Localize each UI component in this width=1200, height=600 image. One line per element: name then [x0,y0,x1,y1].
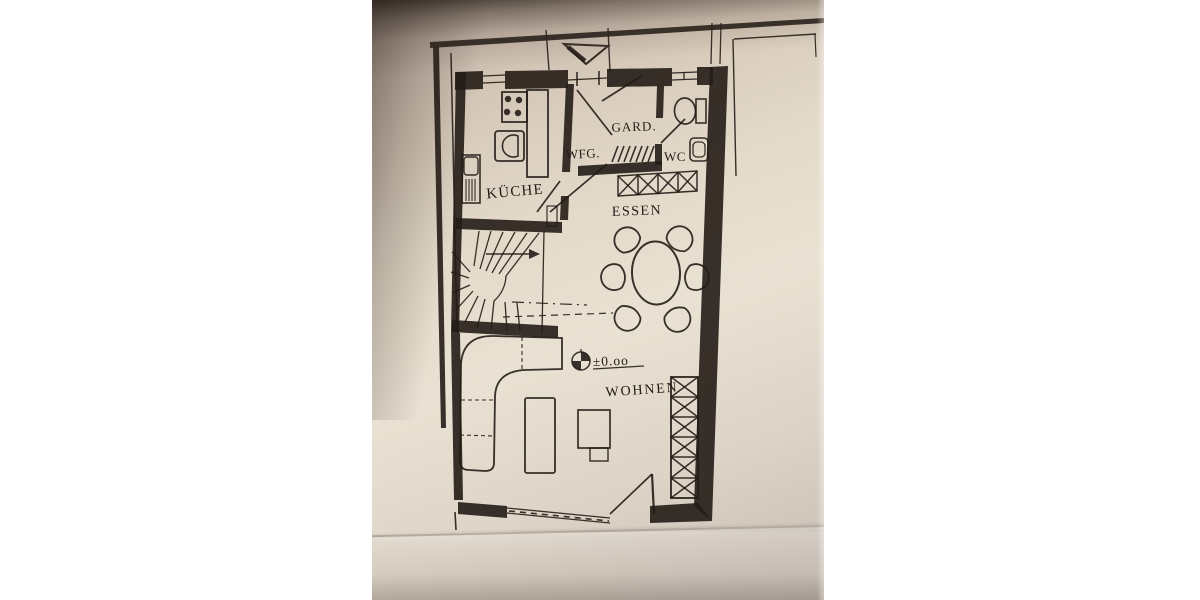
entrance-opening [568,71,607,86]
stair-direction-arrow-icon [486,249,540,259]
dining-chair [661,303,695,336]
property-boundary-lines [430,18,824,530]
corner-sofa [460,336,562,471]
label-wc: WC [664,149,686,164]
dining-chair [610,302,645,336]
floor-plan-photo: KÜCHE WFG. GARD. WC ESSEN WOHNEN ±0.oo [372,0,824,600]
stove-icon [502,92,527,122]
wc-window [672,72,697,80]
tv-table [578,410,610,461]
dining-chair [609,222,644,257]
coat-hatching [612,146,654,162]
kitchen-counter [527,90,548,177]
coffee-table [525,398,555,473]
label-wfg: WFG. [565,145,600,162]
kitchen-window [483,75,505,83]
tall-cabinet-icon [462,155,480,203]
label-gard: GARD. [611,118,657,135]
label-wohnen: WOHNEN [605,380,679,400]
dining-table [630,240,681,305]
wash-basin-icon [690,138,708,161]
winder-staircase [451,231,544,333]
terrace-door [610,474,654,514]
entrance-arrow-icon [564,44,608,64]
wardrobe-cabinet [618,171,697,196]
dining-chair [663,221,698,256]
dining-chair [600,263,626,291]
floor-plan-drawing: KÜCHE WFG. GARD. WC ESSEN WOHNEN ±0.oo [372,0,824,600]
floor-lines [503,302,613,317]
toilet-icon [674,97,706,124]
label-essen: ESSEN [612,203,663,220]
kitchen-sink-icon [495,131,524,161]
page-background: KÜCHE WFG. GARD. WC ESSEN WOHNEN ±0.oo [0,0,1200,600]
living-room-window [507,508,610,523]
label-kueche: KÜCHE [486,181,545,203]
label-level: ±0.oo [593,353,630,369]
